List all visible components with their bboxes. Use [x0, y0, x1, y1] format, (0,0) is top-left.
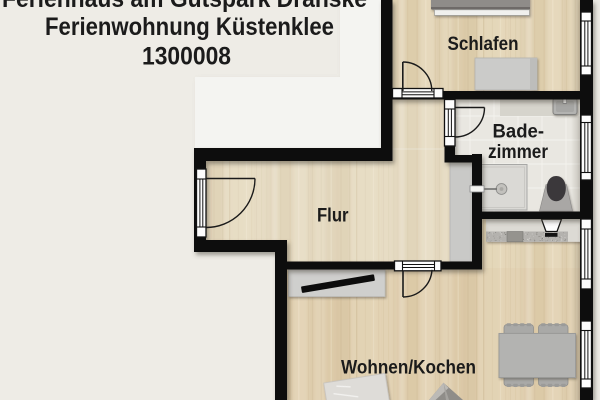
svg-text:Ferienwohnung Küstenklee: Ferienwohnung Küstenklee — [45, 13, 334, 41]
svg-text:1300008: 1300008 — [142, 43, 231, 71]
svg-text:zimmer: zimmer — [488, 142, 549, 163]
svg-text:Schlafen: Schlafen — [448, 34, 519, 55]
svg-text:Bade-: Bade- — [493, 122, 545, 143]
svg-text:Ferienhaus am Gutspark Dranske: Ferienhaus am Gutspark Dranske — [2, 0, 367, 13]
svg-text:Wohnen/Kochen: Wohnen/Kochen — [341, 358, 476, 379]
svg-text:Flur: Flur — [317, 205, 349, 226]
